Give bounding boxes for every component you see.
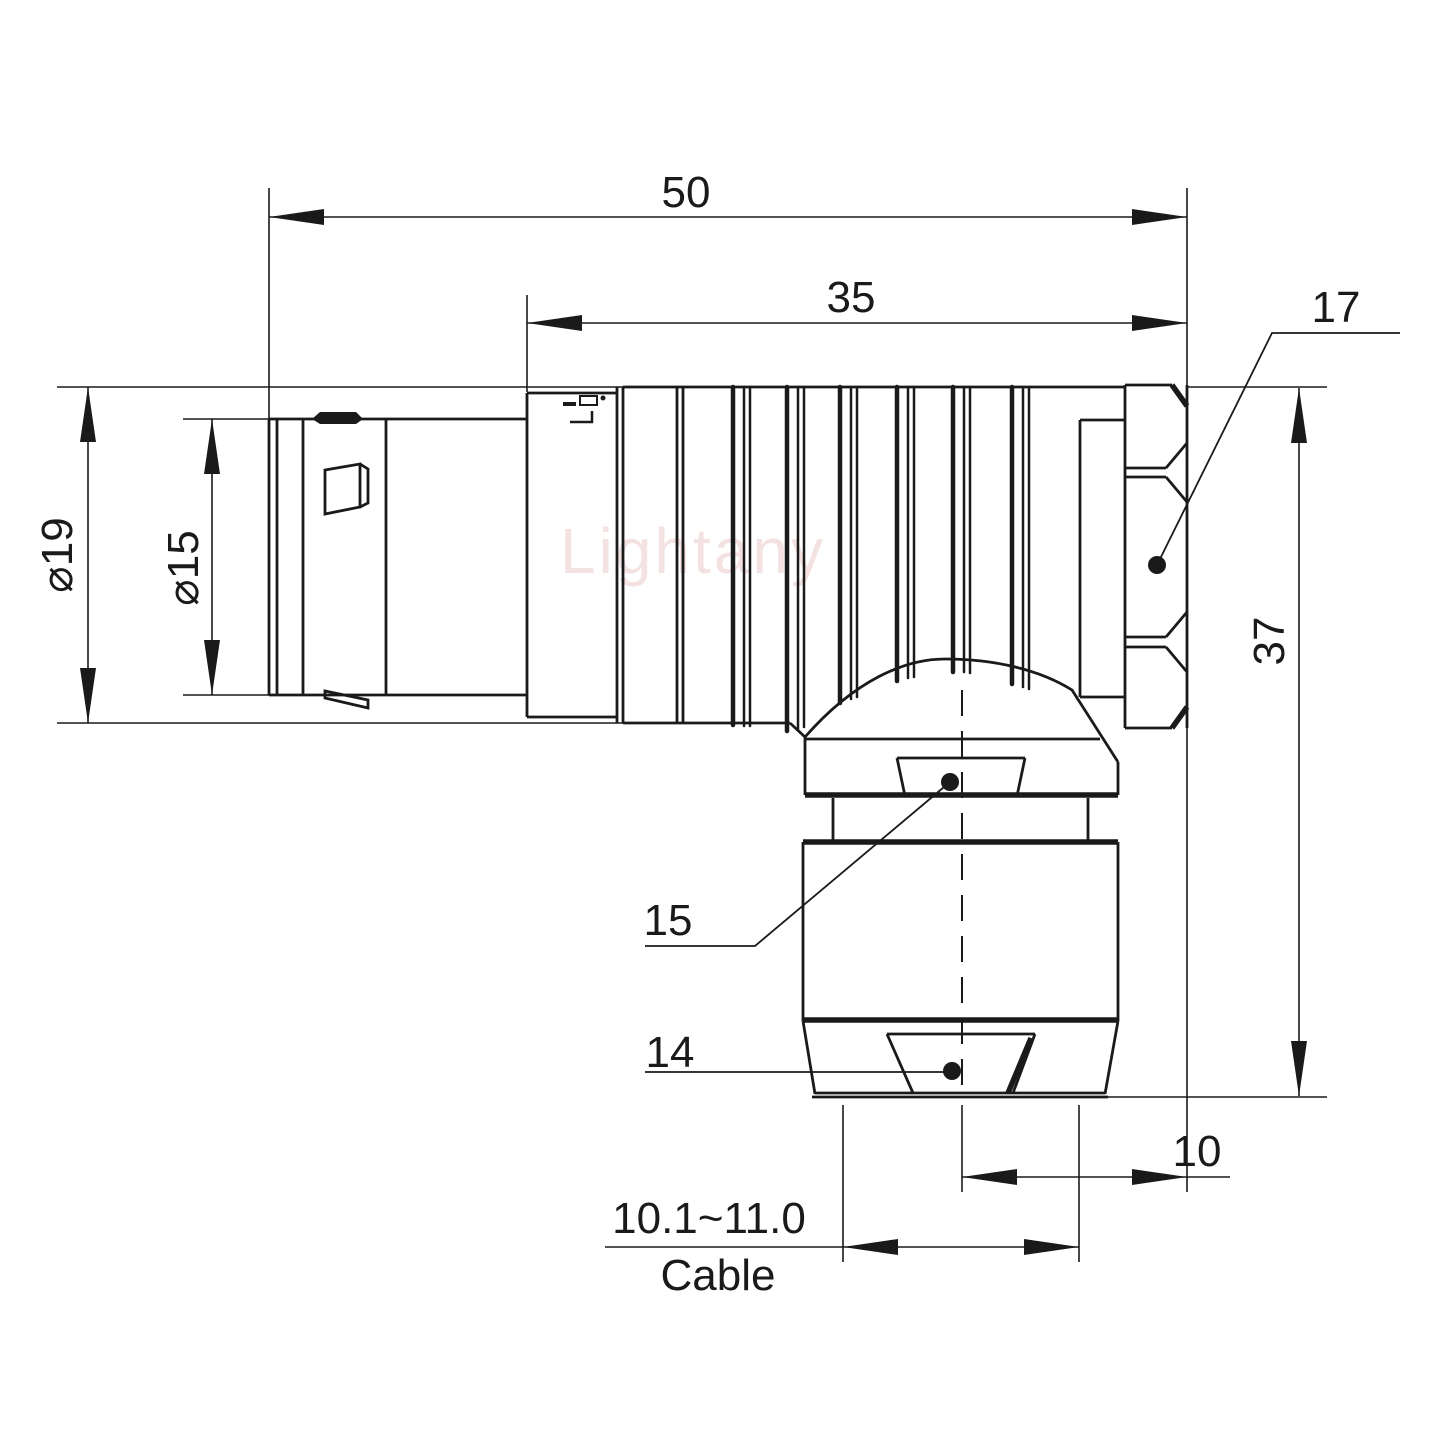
callout-15: 15 [644,773,959,946]
cable-clamp-nut [803,842,1118,1097]
callout-14: 14 [645,1028,961,1080]
arrowhead-left-icon [269,209,324,225]
arrowhead-down-icon [80,668,96,723]
callout-17-value: 17 [1312,283,1361,332]
gland-window-side [897,758,905,796]
latch-wedge [325,691,368,708]
cone-window-shadow [1008,1038,1031,1093]
leader-dot-icon [1148,556,1166,574]
arrowhead-up-icon [1291,388,1307,443]
dimension-dia19: ⌀19 [33,387,623,723]
arrowhead-up-icon [204,419,220,474]
hex-facet-corner [1166,443,1187,468]
cone-side [1105,1021,1118,1094]
latch-bump [312,412,363,424]
dim-dia19-value: ⌀19 [33,517,82,592]
dim-37-value: 37 [1245,617,1294,666]
hex-facet-corner [1166,647,1187,672]
engraving-hook [570,411,592,422]
dimension-cable: 10.1~11.0 Cable [605,1105,1079,1300]
dimension-37: 37 [1105,387,1327,1097]
arrowhead-right-icon [1024,1239,1079,1255]
dimension-35: 35 [527,273,1187,392]
arrowhead-left-icon [962,1169,1017,1185]
arrowhead-right-icon [1132,209,1187,225]
latch-window [325,464,360,514]
dim-50-value: 50 [662,168,711,217]
engraving-marks [563,396,606,423]
connector-technical-drawing: Lightany 50 35 ⌀19 ⌀15 [0,0,1440,1440]
hex-facet-corner [1166,612,1187,637]
rib-cluster [953,387,970,673]
dimension-10: 10 [962,1105,1230,1192]
arrowhead-down-icon [204,640,220,695]
arrowhead-left-icon [843,1239,898,1255]
engraving-dot [601,396,606,401]
leader-dot-icon [941,773,959,791]
hex-bottom-chamfer [1172,707,1187,728]
cone-window-side [887,1034,913,1093]
gland-window-side [1017,758,1025,796]
cone-side [803,1021,815,1094]
dim-dia15-value: ⌀15 [159,530,208,605]
arrowhead-right-icon [1132,315,1187,331]
engraving-box [580,396,597,405]
front-sleeve [269,412,527,708]
arrowhead-up-icon [80,387,96,442]
callout-15-value: 15 [644,896,693,945]
rib-cluster [1012,387,1029,689]
callout-14-value: 14 [646,1028,695,1077]
hex-facet-corner [1166,477,1187,502]
cable-range-value: 10.1~11.0 [612,1194,806,1243]
arrowhead-down-icon [1291,1041,1307,1096]
dim-10-value: 10 [1173,1127,1222,1176]
dimension-50: 50 [269,168,1187,1192]
rib-cluster [840,387,857,703]
leader-dot-icon [943,1062,961,1080]
arrowhead-left-icon [527,315,582,331]
rib-cluster [897,387,914,681]
dim-35-value: 35 [827,273,876,322]
drawing-canvas: Lightany 50 35 ⌀19 ⌀15 [0,0,1440,1440]
dimension-dia15: ⌀15 [159,419,269,695]
hex-top-chamfer [1172,385,1187,406]
leader-line [1157,333,1400,565]
cable-caption: Cable [661,1251,776,1300]
